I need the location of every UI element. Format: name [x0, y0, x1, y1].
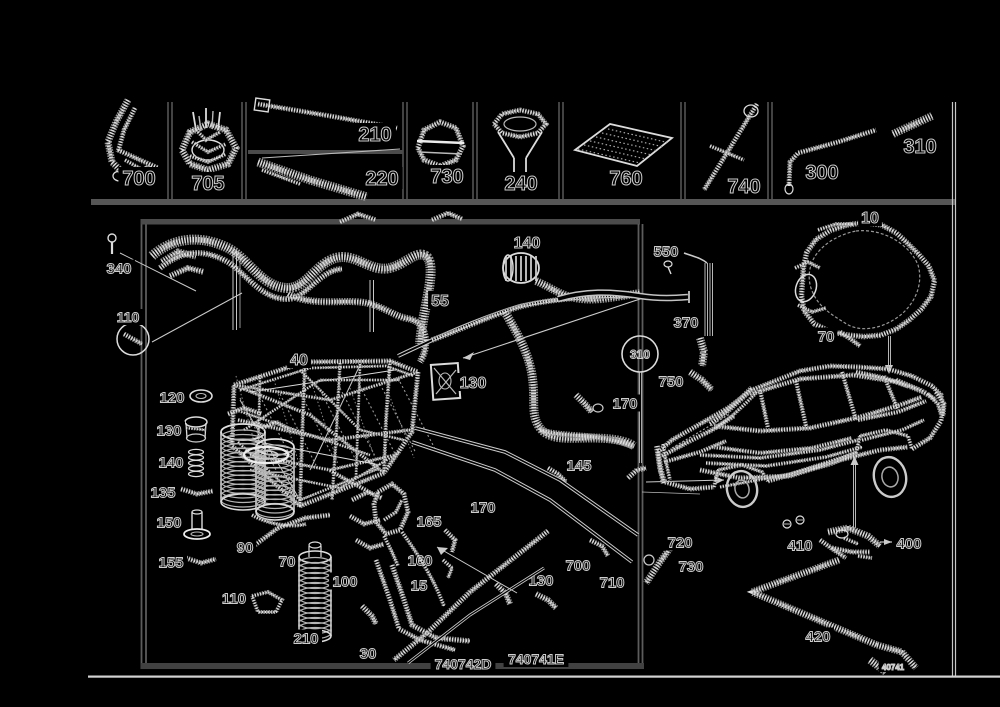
svg-text:750: 750: [658, 373, 683, 390]
svg-text:70: 70: [279, 553, 296, 570]
svg-text:150: 150: [156, 514, 181, 531]
svg-text:410: 410: [787, 537, 812, 554]
svg-text:730: 730: [678, 558, 703, 575]
svg-text:15: 15: [411, 577, 428, 594]
svg-text:760: 760: [609, 168, 642, 190]
svg-text:140: 140: [158, 454, 183, 471]
svg-text:740: 740: [727, 176, 760, 198]
svg-text:40: 40: [290, 352, 308, 369]
svg-text:740742D: 740742D: [435, 656, 492, 672]
svg-text:740741E: 740741E: [508, 651, 564, 667]
svg-text:340: 340: [106, 260, 131, 277]
svg-text:120: 120: [159, 389, 184, 406]
svg-text:220: 220: [365, 168, 398, 190]
svg-text:90: 90: [237, 539, 254, 556]
svg-text:700: 700: [122, 168, 155, 190]
svg-text:110: 110: [117, 309, 140, 325]
svg-text:145: 145: [566, 457, 591, 474]
svg-text:730: 730: [430, 166, 463, 188]
svg-text:30: 30: [360, 645, 377, 662]
svg-text:10: 10: [861, 210, 879, 227]
svg-text:310: 310: [630, 347, 650, 361]
svg-text:700: 700: [565, 557, 590, 574]
svg-text:705: 705: [191, 173, 224, 195]
svg-text:550: 550: [653, 243, 678, 260]
svg-text:100: 100: [332, 573, 357, 590]
svg-text:165: 165: [416, 513, 441, 530]
svg-text:210: 210: [293, 630, 318, 647]
svg-text:400: 400: [896, 535, 921, 552]
svg-text:130: 130: [156, 422, 181, 439]
svg-text:155: 155: [158, 554, 183, 571]
svg-text:240: 240: [504, 173, 537, 195]
svg-text:310: 310: [903, 136, 936, 158]
svg-text:420: 420: [805, 628, 830, 645]
svg-text:300: 300: [805, 162, 838, 184]
svg-text:140: 140: [514, 235, 541, 252]
svg-text:210: 210: [358, 124, 391, 146]
svg-text:170: 170: [470, 499, 495, 516]
svg-text:130: 130: [460, 375, 487, 392]
svg-text:70: 70: [818, 328, 835, 345]
svg-text:55: 55: [431, 293, 449, 310]
svg-text:170: 170: [612, 395, 637, 412]
svg-text:720: 720: [667, 534, 692, 551]
svg-text:135: 135: [150, 484, 175, 501]
svg-text:110: 110: [222, 590, 246, 607]
svg-text:710: 710: [599, 574, 624, 591]
svg-text:40741: 40741: [882, 663, 905, 672]
svg-text:370: 370: [673, 314, 698, 331]
